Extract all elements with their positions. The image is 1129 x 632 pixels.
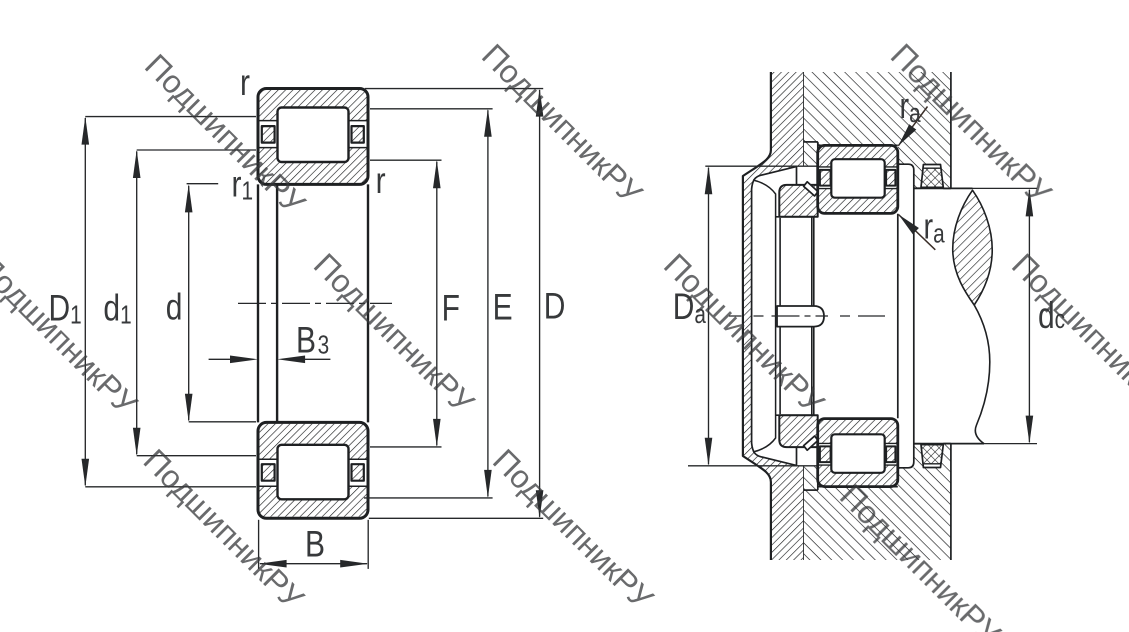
svg-text:D: D — [544, 285, 566, 327]
svg-text:B: B — [305, 523, 325, 565]
svg-text:E: E — [493, 286, 513, 328]
svg-text:ПодшипникРУ: ПодшипникРУ — [1005, 246, 1129, 421]
svg-text:ПодшипникРУ: ПодшипникРУ — [486, 442, 661, 617]
svg-text:ПодшипникРУ: ПодшипникРУ — [475, 37, 650, 212]
svg-text:d1: d1 — [103, 288, 131, 330]
svg-text:r: r — [376, 160, 386, 202]
svg-text:d: d — [166, 287, 183, 329]
svg-text:ra: ra — [924, 205, 946, 248]
svg-text:ПодшипникРУ: ПодшипникРУ — [307, 246, 482, 421]
svg-text:B3: B3 — [296, 319, 329, 361]
svg-text:ПодшипникРУ: ПодшипникРУ — [0, 247, 145, 422]
svg-text:F: F — [442, 287, 460, 329]
svg-text:r: r — [240, 62, 250, 104]
